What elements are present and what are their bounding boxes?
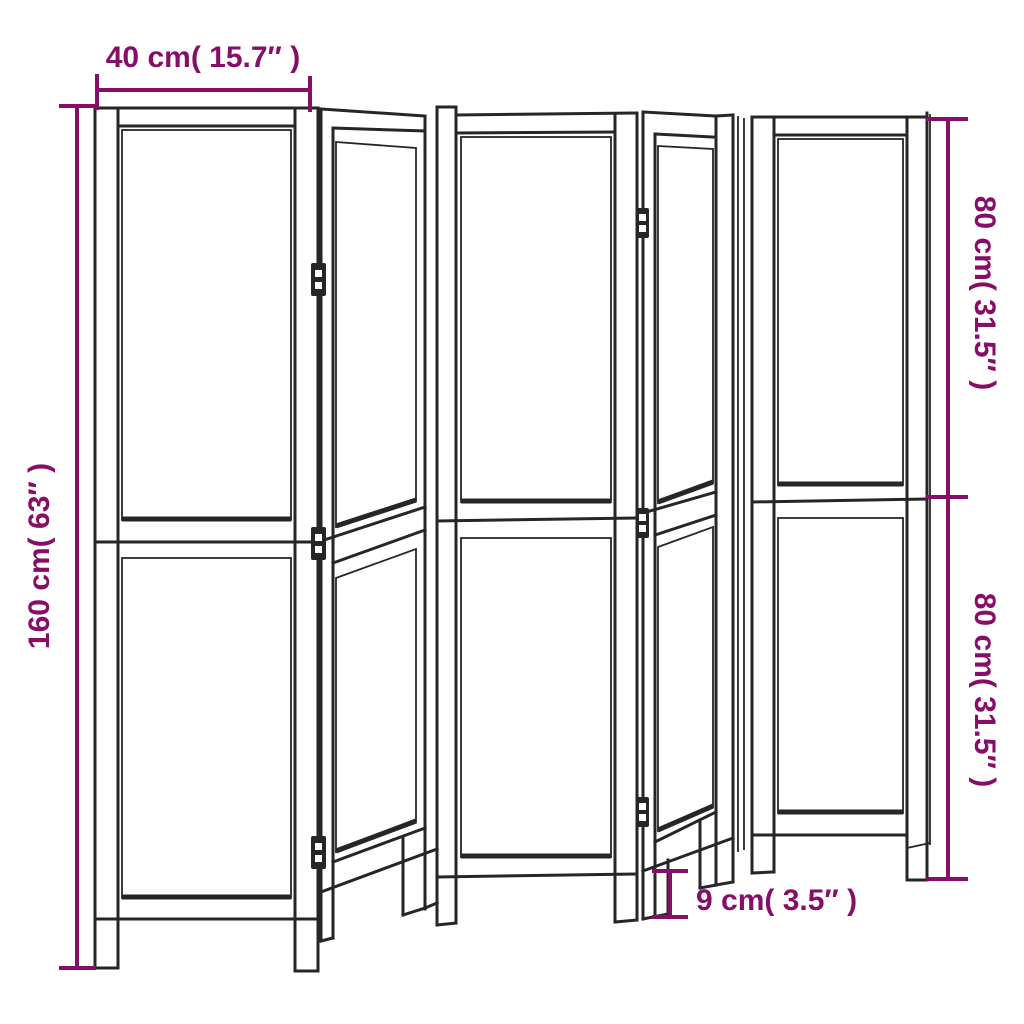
- panel-2: [321, 109, 437, 941]
- hinge-marker: [636, 797, 649, 827]
- hinge-marker: [311, 527, 326, 560]
- panel-5: [752, 113, 930, 880]
- dimension-lower-section-height: 80 cm( 31.5″ ): [926, 497, 1001, 879]
- panel-4-lower-inset-panel: [658, 527, 713, 831]
- panel-3: [437, 107, 637, 925]
- panel-5-upper-inset-panel: [778, 139, 903, 485]
- hinge-marker: [636, 508, 649, 538]
- panel-2-upper-inset-panel: [336, 142, 416, 527]
- dimension-panel-width: 40 cm( 15.7″ ): [97, 41, 310, 112]
- panel-1-upper-inset-panel: [122, 130, 291, 520]
- dimension-upper-section-label: 80 cm( 31.5″ ): [968, 196, 1001, 390]
- dimension-lower-section-label: 80 cm( 31.5″ ): [968, 593, 1001, 787]
- dimension-total-height: 160 cm( 63″ ): [23, 106, 96, 968]
- hinge-marker: [311, 836, 326, 869]
- dimension-upper-section-height: 80 cm( 31.5″ ): [926, 119, 1001, 497]
- panel-1-lower-inset-panel: [122, 558, 291, 898]
- product-dimension-image: 40 cm( 15.7″ ) 160 cm( 63″ ) 80 cm( 31.5…: [0, 0, 1024, 1024]
- panel-5-lower-inset-panel: [778, 518, 903, 813]
- panel-4-upper-inset-panel: [658, 146, 713, 503]
- panel-1-frame: [95, 108, 318, 971]
- panel-1: [95, 108, 318, 971]
- panel-2-lower-inset-panel: [336, 549, 416, 852]
- dimension-leg-height-label: 9 cm( 3.5″ ): [696, 884, 857, 917]
- panel-3-upper-inset-panel: [461, 137, 611, 502]
- panel-4: [643, 112, 744, 919]
- dimension-leg-height: 9 cm( 3.5″ ): [652, 871, 857, 917]
- dimension-panel-width-label: 40 cm( 15.7″ ): [106, 41, 300, 74]
- hinge-marker: [311, 263, 326, 296]
- panel-3-frame: [437, 107, 637, 925]
- dimension-total-height-label: 160 cm( 63″ ): [23, 463, 56, 649]
- panel-3-lower-inset-panel: [461, 538, 611, 857]
- dimension-drawing: 40 cm( 15.7″ ) 160 cm( 63″ ) 80 cm( 31.5…: [0, 0, 1024, 1024]
- hinge-marker: [636, 208, 649, 238]
